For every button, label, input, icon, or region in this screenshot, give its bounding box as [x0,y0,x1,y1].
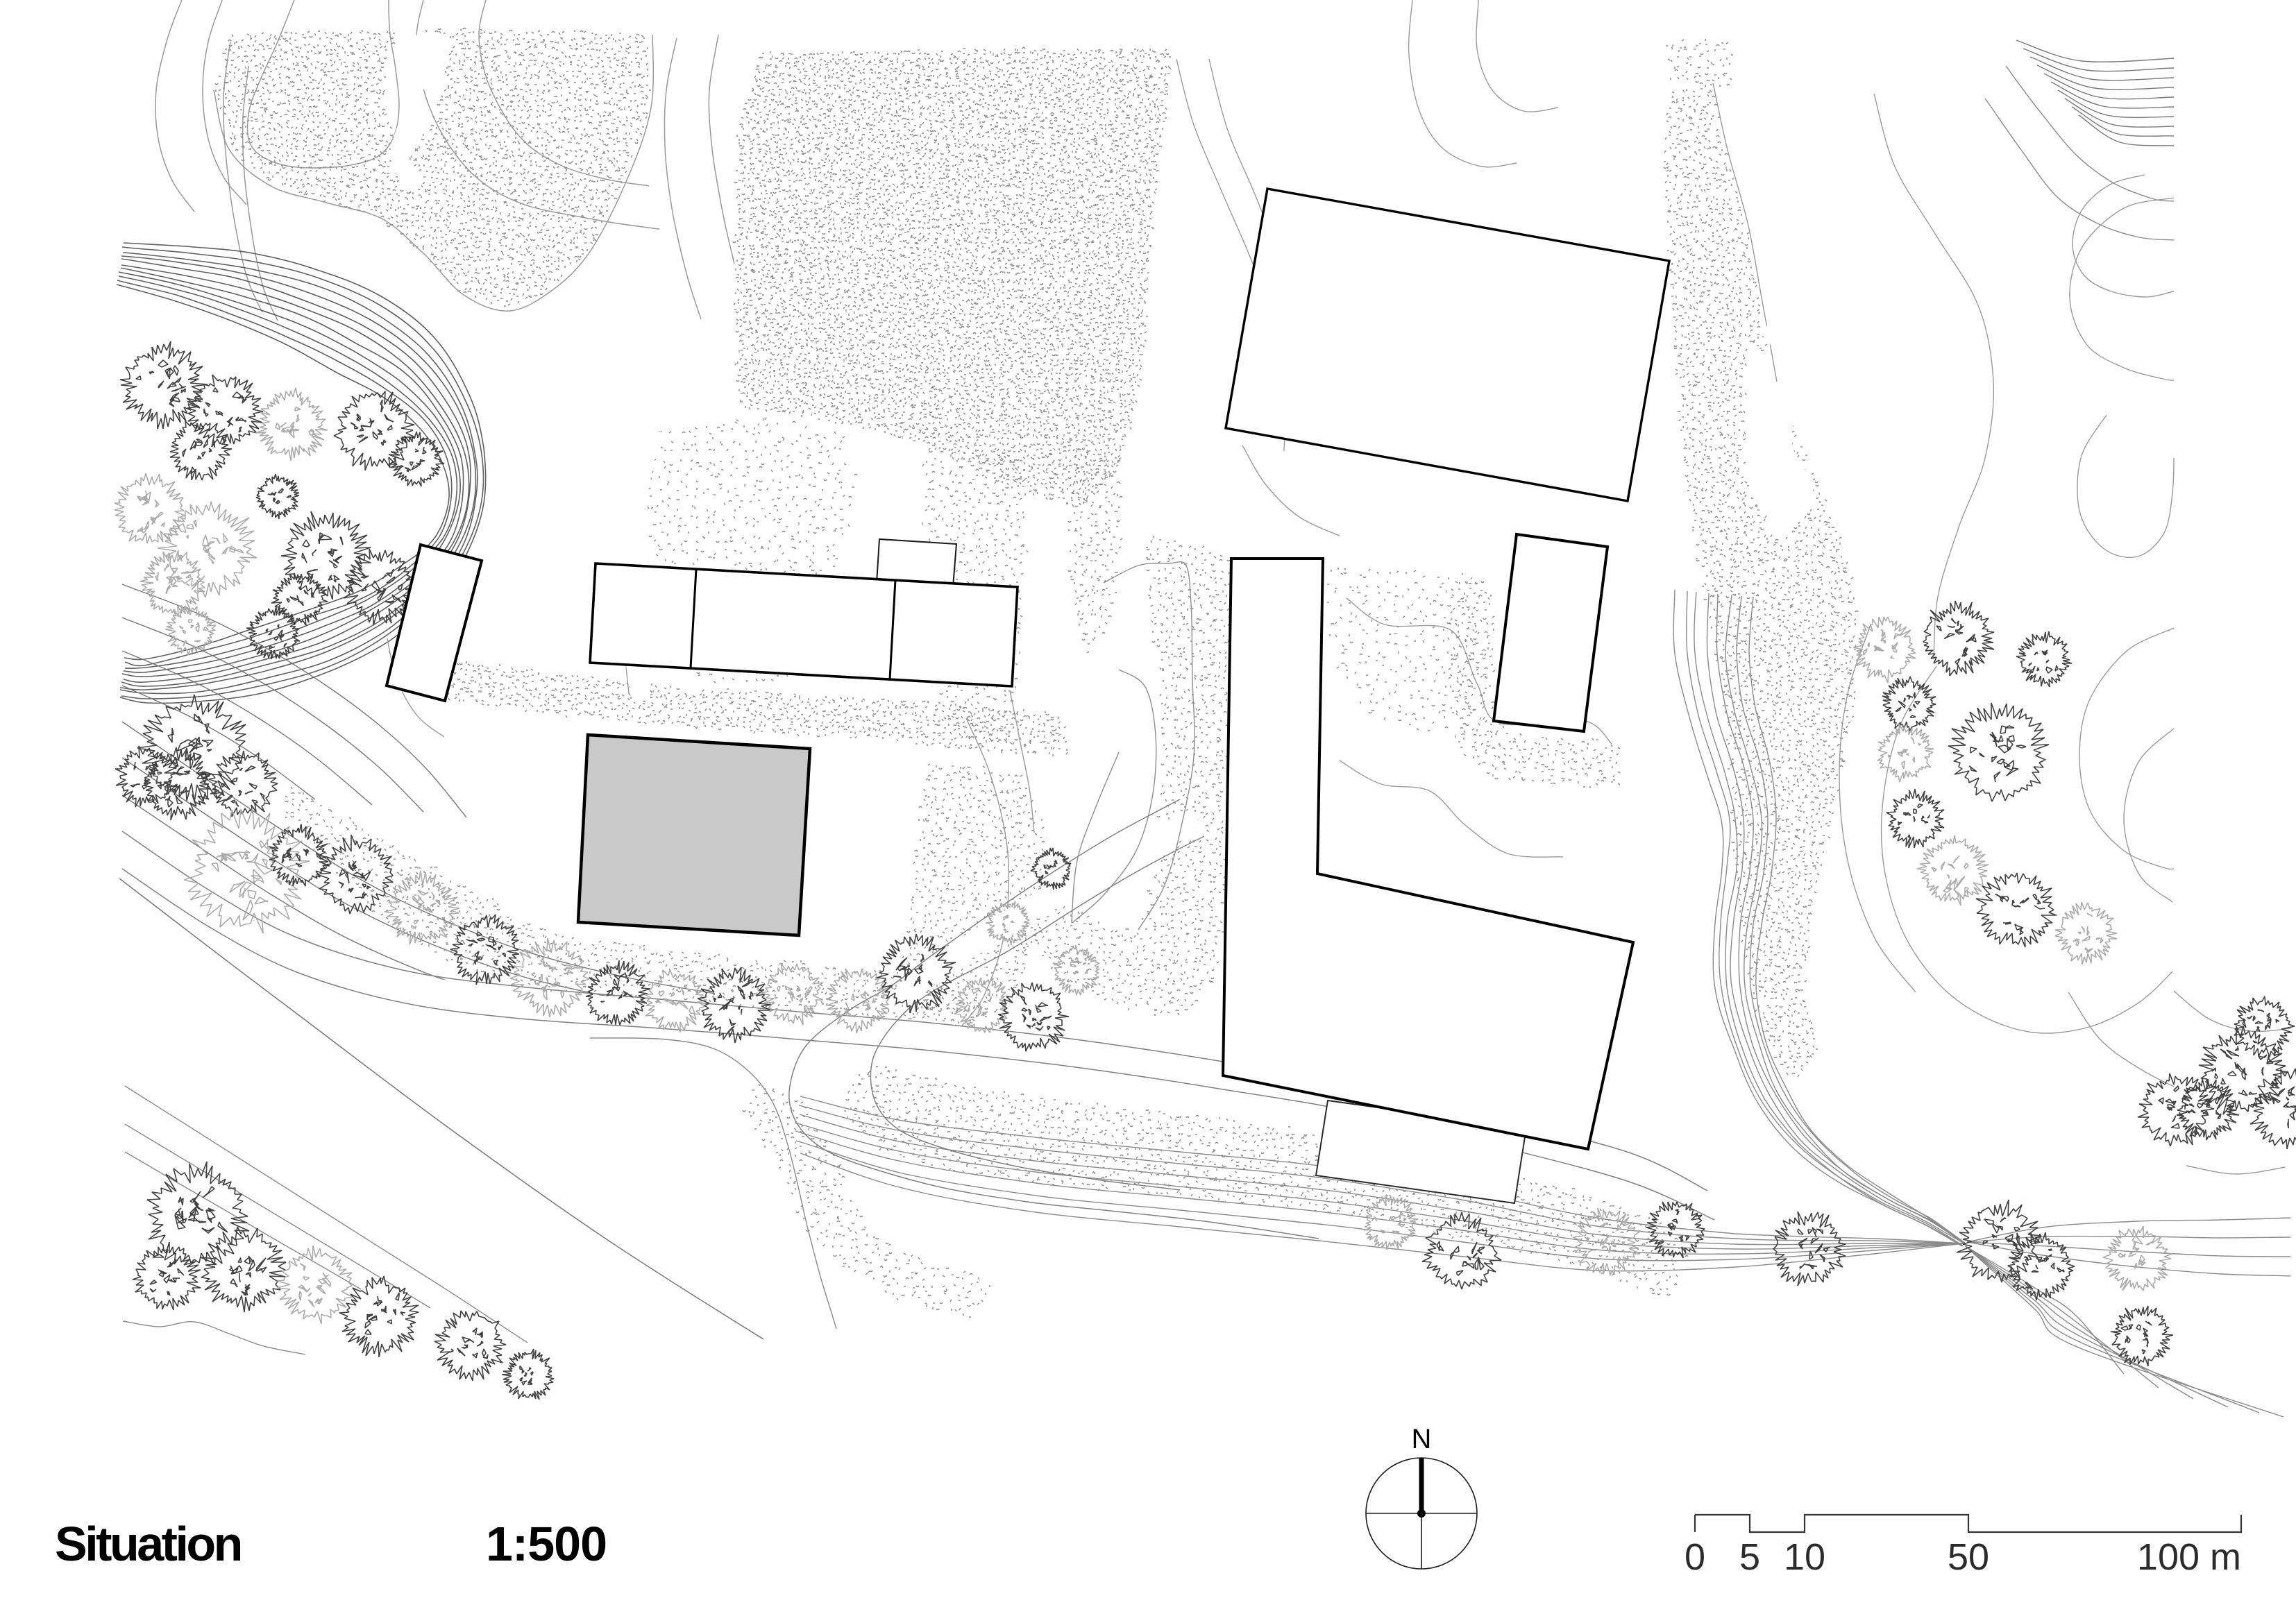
svg-text:100 m: 100 m [2137,1536,2241,1578]
svg-text:N: N [1412,1424,1432,1454]
svg-text:50: 50 [1948,1536,1989,1578]
svg-text:10: 10 [1784,1536,1825,1578]
svg-text:0: 0 [1685,1536,1705,1578]
svg-text:1:500: 1:500 [486,1517,607,1571]
svg-text:5: 5 [1739,1536,1760,1578]
svg-text:Situation: Situation [55,1517,241,1571]
